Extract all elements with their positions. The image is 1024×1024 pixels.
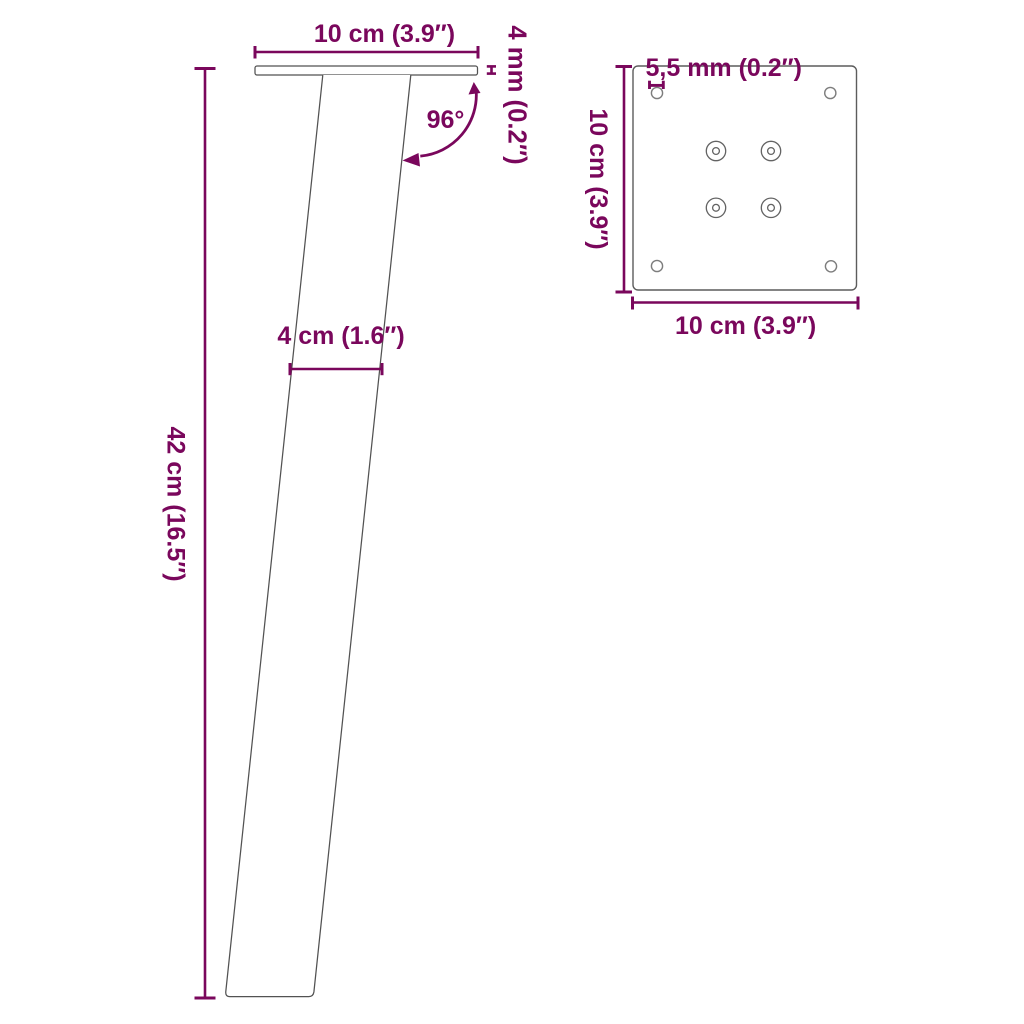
svg-text:42 cm (16.5″): 42 cm (16.5″)	[162, 426, 190, 581]
svg-text:96°: 96°	[427, 106, 465, 134]
svg-text:4 cm (1.6″): 4 cm (1.6″)	[277, 322, 404, 350]
svg-text:10 cm (3.9″): 10 cm (3.9″)	[314, 20, 455, 48]
svg-text:10 cm (3.9″): 10 cm (3.9″)	[584, 108, 612, 249]
svg-text:10 cm (3.9″): 10 cm (3.9″)	[675, 312, 816, 340]
svg-text:5,5 mm (0.2″): 5,5 mm (0.2″)	[646, 54, 802, 82]
svg-text:4 mm (0.2″): 4 mm (0.2″)	[503, 25, 531, 164]
